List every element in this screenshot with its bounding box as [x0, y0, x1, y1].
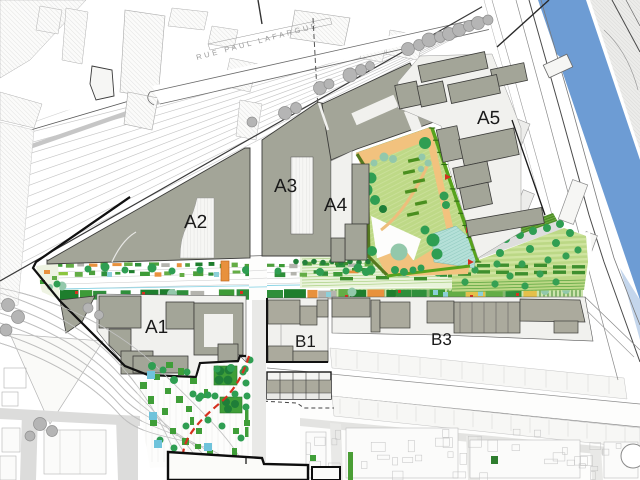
- svg-text:A3: A3: [274, 176, 297, 197]
- svg-text:A4: A4: [324, 195, 348, 216]
- svg-text:A5: A5: [477, 108, 500, 129]
- svg-text:A1: A1: [145, 317, 168, 338]
- svg-text:B1: B1: [295, 332, 316, 351]
- svg-text:A2: A2: [184, 212, 207, 233]
- svg-text:B3: B3: [431, 330, 452, 349]
